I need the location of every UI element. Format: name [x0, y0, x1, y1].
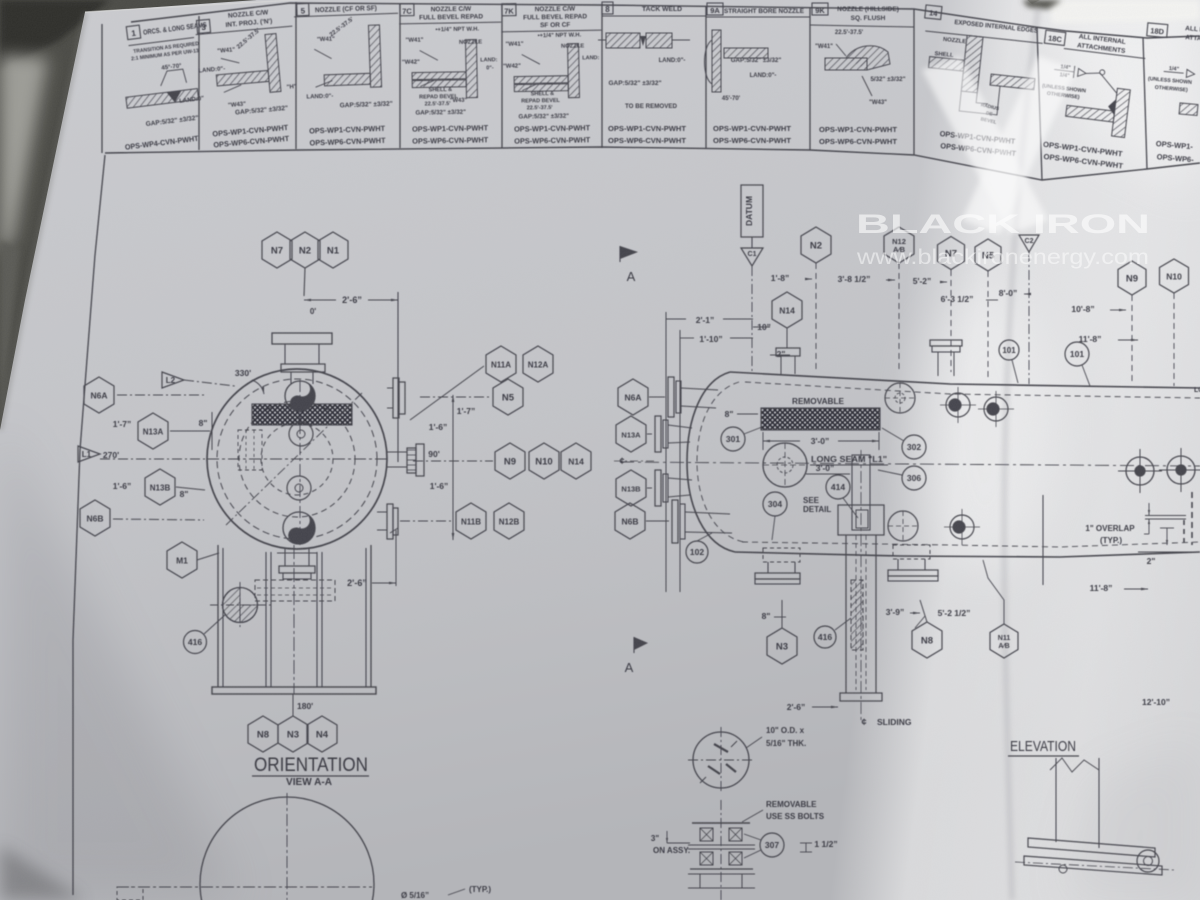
- svg-text:BLACK IRON: BLACK IRON: [856, 209, 1150, 239]
- svg-text:www.blackironenergy.com: www.blackironenergy.com: [856, 246, 1149, 269]
